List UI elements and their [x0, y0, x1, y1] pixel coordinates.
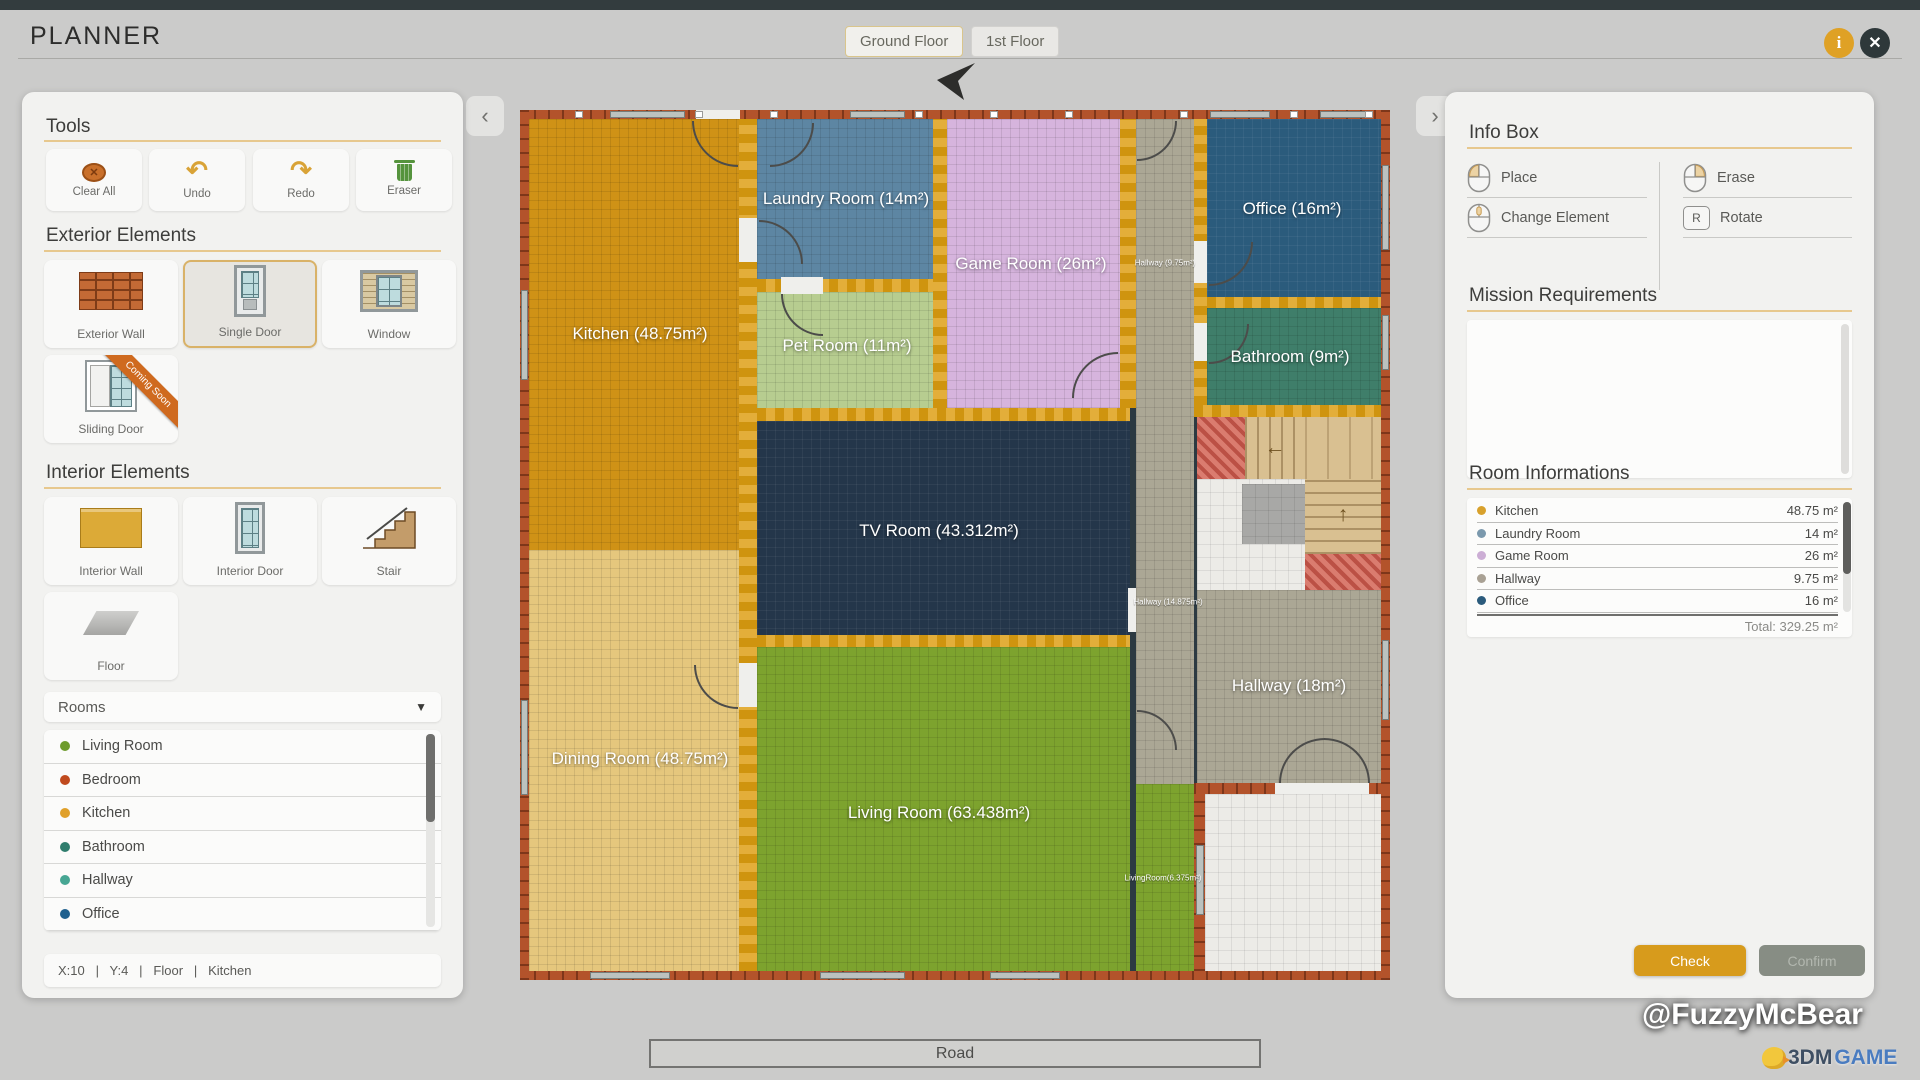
label-living-small: LivingRoom(6.375m²) — [1125, 874, 1202, 883]
redo-icon — [290, 160, 312, 184]
window-top-strip — [0, 0, 1920, 10]
color-dot — [1477, 506, 1486, 515]
door-opening — [1128, 588, 1136, 632]
label-hallway-big: Hallway (18m²) — [1232, 676, 1346, 696]
exterior-wall-left — [520, 110, 529, 980]
interior-wall — [757, 635, 1130, 647]
header-divider — [18, 58, 1902, 59]
north-arrow — [936, 62, 978, 107]
tools-underline — [44, 140, 441, 142]
info-icon[interactable]: i — [1824, 28, 1854, 58]
room-info-row: Game Room26 m² — [1477, 545, 1838, 568]
interior-wall — [933, 119, 947, 408]
interior-wall — [757, 408, 1130, 421]
window — [1382, 165, 1389, 250]
mission-requirements-box — [1467, 320, 1852, 478]
mouse-left-icon — [1467, 163, 1491, 193]
element-interior-wall[interactable]: Interior Wall — [44, 497, 178, 585]
room-info-row: Office16 m² — [1477, 590, 1838, 613]
window — [820, 972, 905, 979]
room-info-total: Total: 329.25 m² — [1477, 614, 1838, 634]
color-dot — [60, 842, 70, 852]
undo-button[interactable]: Undo — [149, 149, 245, 211]
left-sidebar: Tools ✕ Clear All Undo Redo Eraser Exter… — [22, 92, 463, 998]
stair-gray-platform — [1242, 484, 1306, 544]
element-sliding-door[interactable]: Sliding Door Coming Soon — [44, 355, 178, 443]
page-title: PLANNER — [30, 22, 162, 51]
room-hallway-corridor[interactable] — [1136, 119, 1194, 784]
room-type-office[interactable]: Office — [44, 898, 441, 932]
color-dot — [1477, 596, 1486, 605]
watermark-3dmgame-logo: 3DMGAME — [1762, 1046, 1897, 1070]
clear-all-button[interactable]: ✕ Clear All — [46, 149, 142, 211]
label-laundry: Laundry Room (14m²) — [763, 189, 929, 209]
room-info-scrollbar-thumb[interactable] — [1843, 502, 1851, 574]
element-exterior-wall[interactable]: Exterior Wall — [44, 260, 178, 348]
interior-wall — [1194, 405, 1381, 417]
info-box-right-column: Erase R Rotate — [1683, 158, 1852, 238]
hint-rotate: R Rotate — [1683, 198, 1852, 238]
window — [850, 111, 905, 118]
check-button[interactable]: Check — [1634, 945, 1746, 976]
label-pet: Pet Room (11m²) — [782, 336, 911, 356]
undo-icon — [186, 160, 208, 184]
interior-wall — [1120, 119, 1136, 408]
stair-arrow-up-icon: ↑ — [1338, 503, 1349, 527]
mission-requirements-heading: Mission Requirements — [1469, 285, 1657, 307]
color-dot — [60, 909, 70, 919]
stair-void-hatch — [1305, 554, 1381, 590]
mouse-right-icon — [1683, 163, 1707, 193]
floor-icon — [83, 611, 139, 635]
room-type-bedroom[interactable]: Bedroom — [44, 764, 441, 798]
hint-erase: Erase — [1683, 158, 1852, 198]
info-box-left-column: Place Change Element — [1467, 158, 1647, 238]
window — [521, 700, 528, 795]
info-box-heading: Info Box — [1469, 122, 1539, 144]
eraser-trash-icon — [397, 164, 412, 181]
color-dot — [1477, 529, 1486, 538]
label-dining: Dining Room (48.75m²) — [552, 749, 729, 769]
color-dot — [60, 875, 70, 885]
label-game: Game Room (26m²) — [955, 254, 1106, 274]
room-informations-box: Kitchen48.75 m² Laundry Room14 m² Game R… — [1467, 498, 1852, 637]
label-tv: TV Room (43.312m²) — [859, 521, 1019, 541]
road-label-bar: Road — [649, 1039, 1261, 1068]
room-type-hallway[interactable]: Hallway — [44, 864, 441, 898]
tab-1st-floor[interactable]: 1st Floor — [971, 26, 1059, 57]
window — [521, 290, 528, 380]
color-dot — [60, 808, 70, 818]
label-bathroom: Bathroom (9m²) — [1230, 347, 1349, 367]
window — [1210, 111, 1270, 118]
element-interior-door[interactable]: Interior Door — [183, 497, 317, 585]
interior-wall-icon — [80, 508, 142, 548]
door-opening — [1275, 783, 1369, 794]
color-dot — [60, 775, 70, 785]
single-door-icon — [234, 265, 266, 317]
color-dot — [1477, 551, 1486, 560]
chick-mascot-icon — [1762, 1047, 1786, 1069]
interior-elements-heading: Interior Elements — [46, 462, 190, 484]
door-opening — [739, 218, 757, 262]
info-box-divider — [1659, 162, 1660, 290]
element-floor[interactable]: Floor — [44, 592, 178, 680]
element-window[interactable]: Window — [322, 260, 456, 348]
label-hallway-top: Hallway (9.75m²) — [1135, 259, 1195, 268]
key-r-icon: R — [1683, 206, 1710, 230]
window — [610, 111, 685, 118]
color-dot — [60, 741, 70, 751]
cursor-status-bar: X:10 | Y:4 | Floor | Kitchen — [44, 954, 441, 987]
hint-place: Place — [1467, 158, 1647, 198]
eraser-button[interactable]: Eraser — [356, 149, 452, 211]
watermark-credit: @FuzzyMcBear — [1642, 998, 1863, 1032]
window — [1382, 640, 1389, 720]
confirm-button[interactable]: Confirm — [1759, 945, 1865, 976]
stair-void-hatch — [1197, 417, 1245, 479]
window — [590, 972, 670, 979]
element-stair[interactable]: Stair — [322, 497, 456, 585]
door-opening — [1194, 323, 1207, 361]
exterior-elements-heading: Exterior Elements — [46, 225, 196, 247]
interior-wall — [1207, 297, 1381, 308]
floor-plan-canvas[interactable]: ← ↑ Kitchen (48.75m²) Dining Room (48.7 — [520, 110, 1390, 980]
window — [990, 972, 1060, 979]
label-living: Living Room (63.438m²) — [848, 803, 1030, 823]
collapse-left-panel-button[interactable]: ‹ — [466, 96, 504, 136]
clear-all-icon: ✕ — [82, 163, 106, 182]
window — [1382, 315, 1389, 370]
window-icon — [360, 270, 418, 312]
rooms-dropdown[interactable]: Rooms ▼ — [44, 692, 441, 722]
close-icon[interactable]: ✕ — [1860, 28, 1890, 58]
label-hallway-mid: Hallway (14.875m²) — [1133, 598, 1202, 607]
color-dot — [1477, 574, 1486, 583]
element-single-door[interactable]: Single Door — [183, 260, 317, 348]
stair-landing — [1305, 417, 1381, 479]
room-info-row: Kitchen48.75 m² — [1477, 500, 1838, 523]
tools-heading: Tools — [46, 116, 90, 138]
room-informations-heading: Room Informations — [1469, 463, 1630, 485]
terrace-tile[interactable] — [1205, 794, 1381, 971]
mission-scrollbar[interactable] — [1841, 324, 1849, 474]
room-info-row: Laundry Room14 m² — [1477, 523, 1838, 546]
wall-line — [1130, 408, 1136, 971]
interior-door-icon — [235, 502, 265, 554]
mouse-middle-icon — [1467, 203, 1491, 233]
tab-ground-floor[interactable]: Ground Floor — [845, 26, 963, 57]
stair-arrow-left-icon: ← — [1265, 436, 1286, 460]
right-sidebar: Info Box Place Change Element — [1445, 92, 1874, 998]
room-info-row: Hallway9.75 m² — [1477, 568, 1838, 591]
room-type-bathroom[interactable]: Bathroom — [44, 831, 441, 865]
chevron-down-icon: ▼ — [415, 700, 427, 714]
redo-button[interactable]: Redo — [253, 149, 349, 211]
door-opening — [1194, 241, 1207, 283]
room-list-scrollbar-thumb[interactable] — [426, 734, 435, 822]
window — [1320, 111, 1370, 118]
hint-change-element: Change Element — [1467, 198, 1647, 238]
room-type-kitchen[interactable]: Kitchen — [44, 797, 441, 831]
stair-icon — [361, 506, 417, 550]
door-opening — [739, 663, 757, 707]
door-opening — [781, 277, 823, 294]
room-type-list: Living Room Bedroom Kitchen Bathroom Hal… — [44, 730, 441, 931]
room-type-living-room[interactable]: Living Room — [44, 730, 441, 764]
label-kitchen: Kitchen (48.75m²) — [572, 324, 707, 344]
label-office: Office (16m²) — [1243, 199, 1342, 219]
exterior-wall-icon — [79, 272, 143, 310]
